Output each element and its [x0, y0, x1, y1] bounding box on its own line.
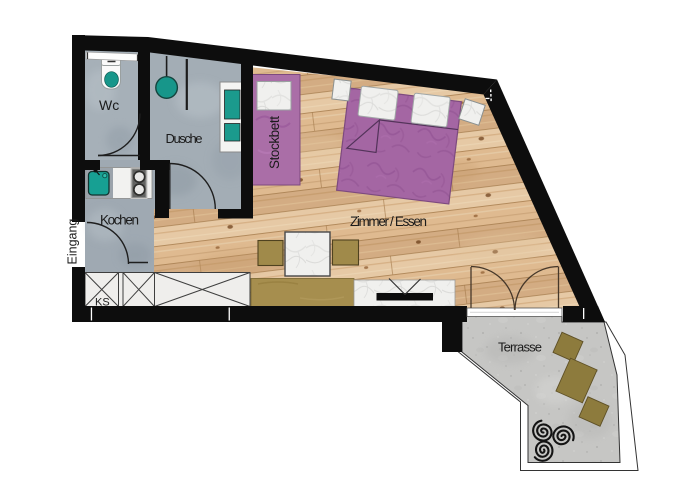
svg-text:Dusche: Dusche	[166, 131, 203, 146]
svg-text:KS: KS	[95, 297, 110, 309]
svg-text:Kochen: Kochen	[100, 213, 139, 228]
svg-text:Wc: Wc	[99, 97, 119, 113]
svg-text:Zimmer / Essen: Zimmer / Essen	[350, 214, 427, 229]
svg-text:Terrasse: Terrasse	[498, 340, 542, 355]
svg-text:Eingang: Eingang	[66, 219, 80, 265]
svg-text:Stockbett: Stockbett	[267, 116, 282, 169]
